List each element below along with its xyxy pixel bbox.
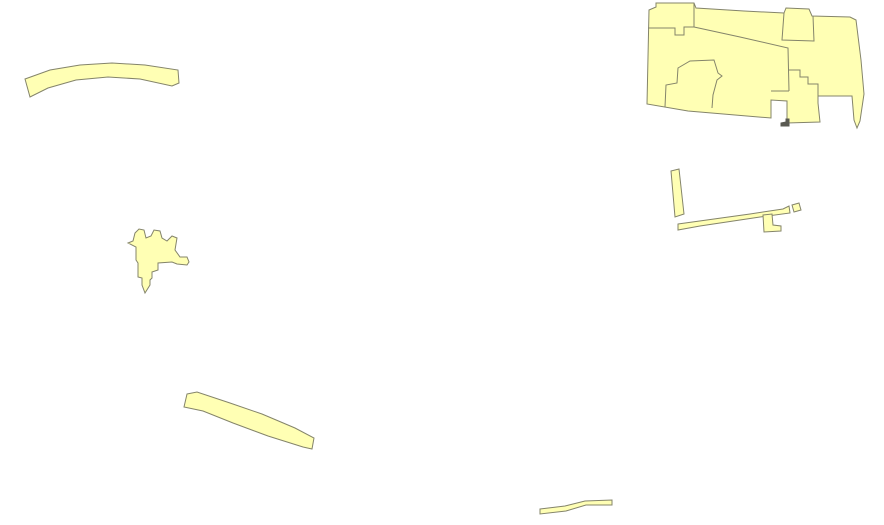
map-feature-layer bbox=[0, 0, 884, 525]
map-canvas[interactable] bbox=[0, 0, 884, 525]
parcel-strip-northwest[interactable] bbox=[25, 63, 179, 97]
parcel-east-small-square[interactable] bbox=[792, 203, 801, 212]
parcel-strip-east-vertical[interactable] bbox=[671, 169, 684, 217]
parcel-east-l-shape[interactable] bbox=[763, 214, 781, 232]
parcel-strip-southwest[interactable] bbox=[184, 392, 314, 449]
parcel-block-northeast-outer[interactable] bbox=[647, 3, 864, 128]
parcel-sliver-dark-mark bbox=[781, 119, 789, 126]
parcel-blob-west[interactable] bbox=[128, 229, 189, 293]
parcel-strip-south[interactable] bbox=[540, 500, 612, 514]
